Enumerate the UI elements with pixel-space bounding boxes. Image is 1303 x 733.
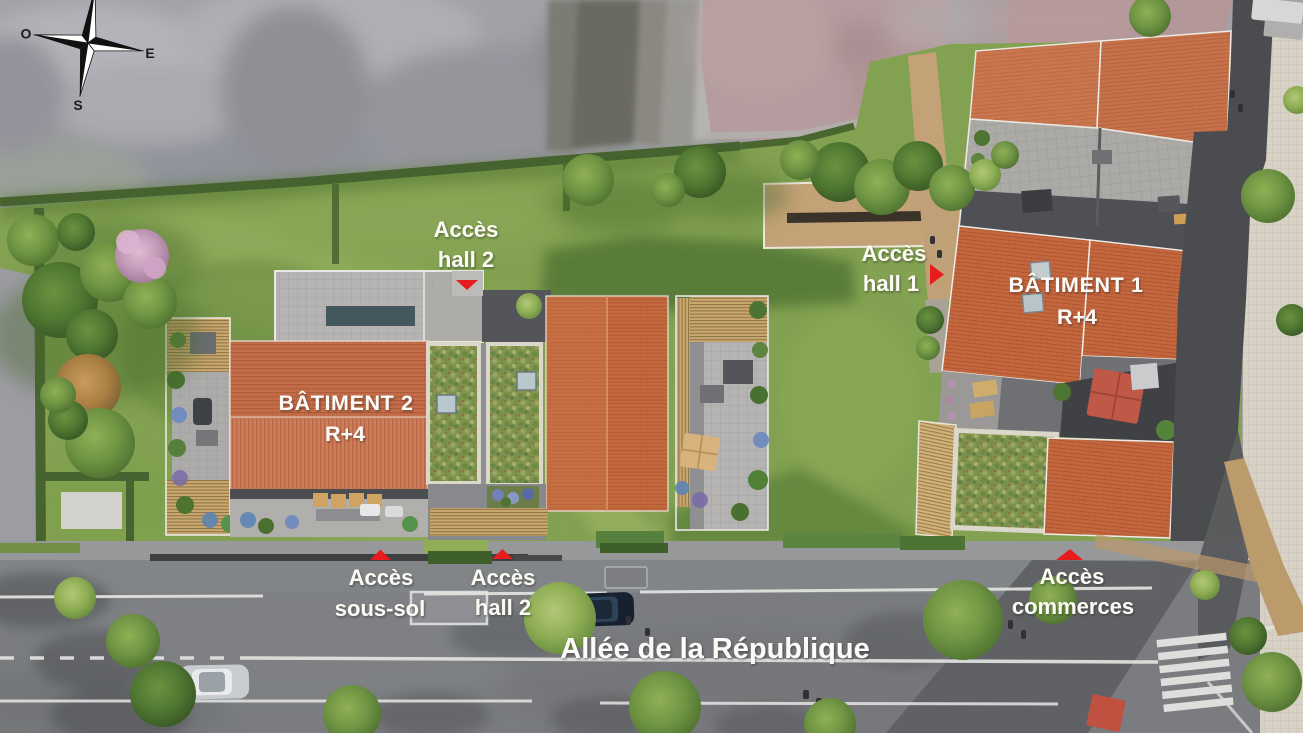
- svg-text:Allée de la République: Allée de la République: [560, 633, 869, 665]
- svg-text:E: E: [145, 45, 154, 61]
- svg-text:R+4: R+4: [1057, 305, 1097, 329]
- svg-text:commerces: commerces: [1012, 594, 1134, 619]
- svg-text:BÂTIMENT 1: BÂTIMENT 1: [1009, 272, 1144, 297]
- svg-text:S: S: [73, 97, 82, 113]
- svg-text:Accès: Accès: [349, 565, 414, 590]
- svg-text:hall 2: hall 2: [475, 595, 531, 620]
- svg-text:O: O: [21, 26, 32, 42]
- svg-text:Accès: Accès: [434, 217, 499, 242]
- svg-text:Accès: Accès: [1040, 564, 1105, 589]
- svg-text:Accès: Accès: [862, 241, 927, 266]
- svg-text:R+4: R+4: [325, 422, 365, 446]
- svg-text:hall 2: hall 2: [438, 247, 494, 272]
- svg-text:hall 1: hall 1: [863, 271, 919, 296]
- svg-text:BÂTIMENT 2: BÂTIMENT 2: [279, 390, 414, 415]
- svg-text:Accès: Accès: [471, 565, 536, 590]
- svg-text:sous-sol: sous-sol: [335, 596, 425, 621]
